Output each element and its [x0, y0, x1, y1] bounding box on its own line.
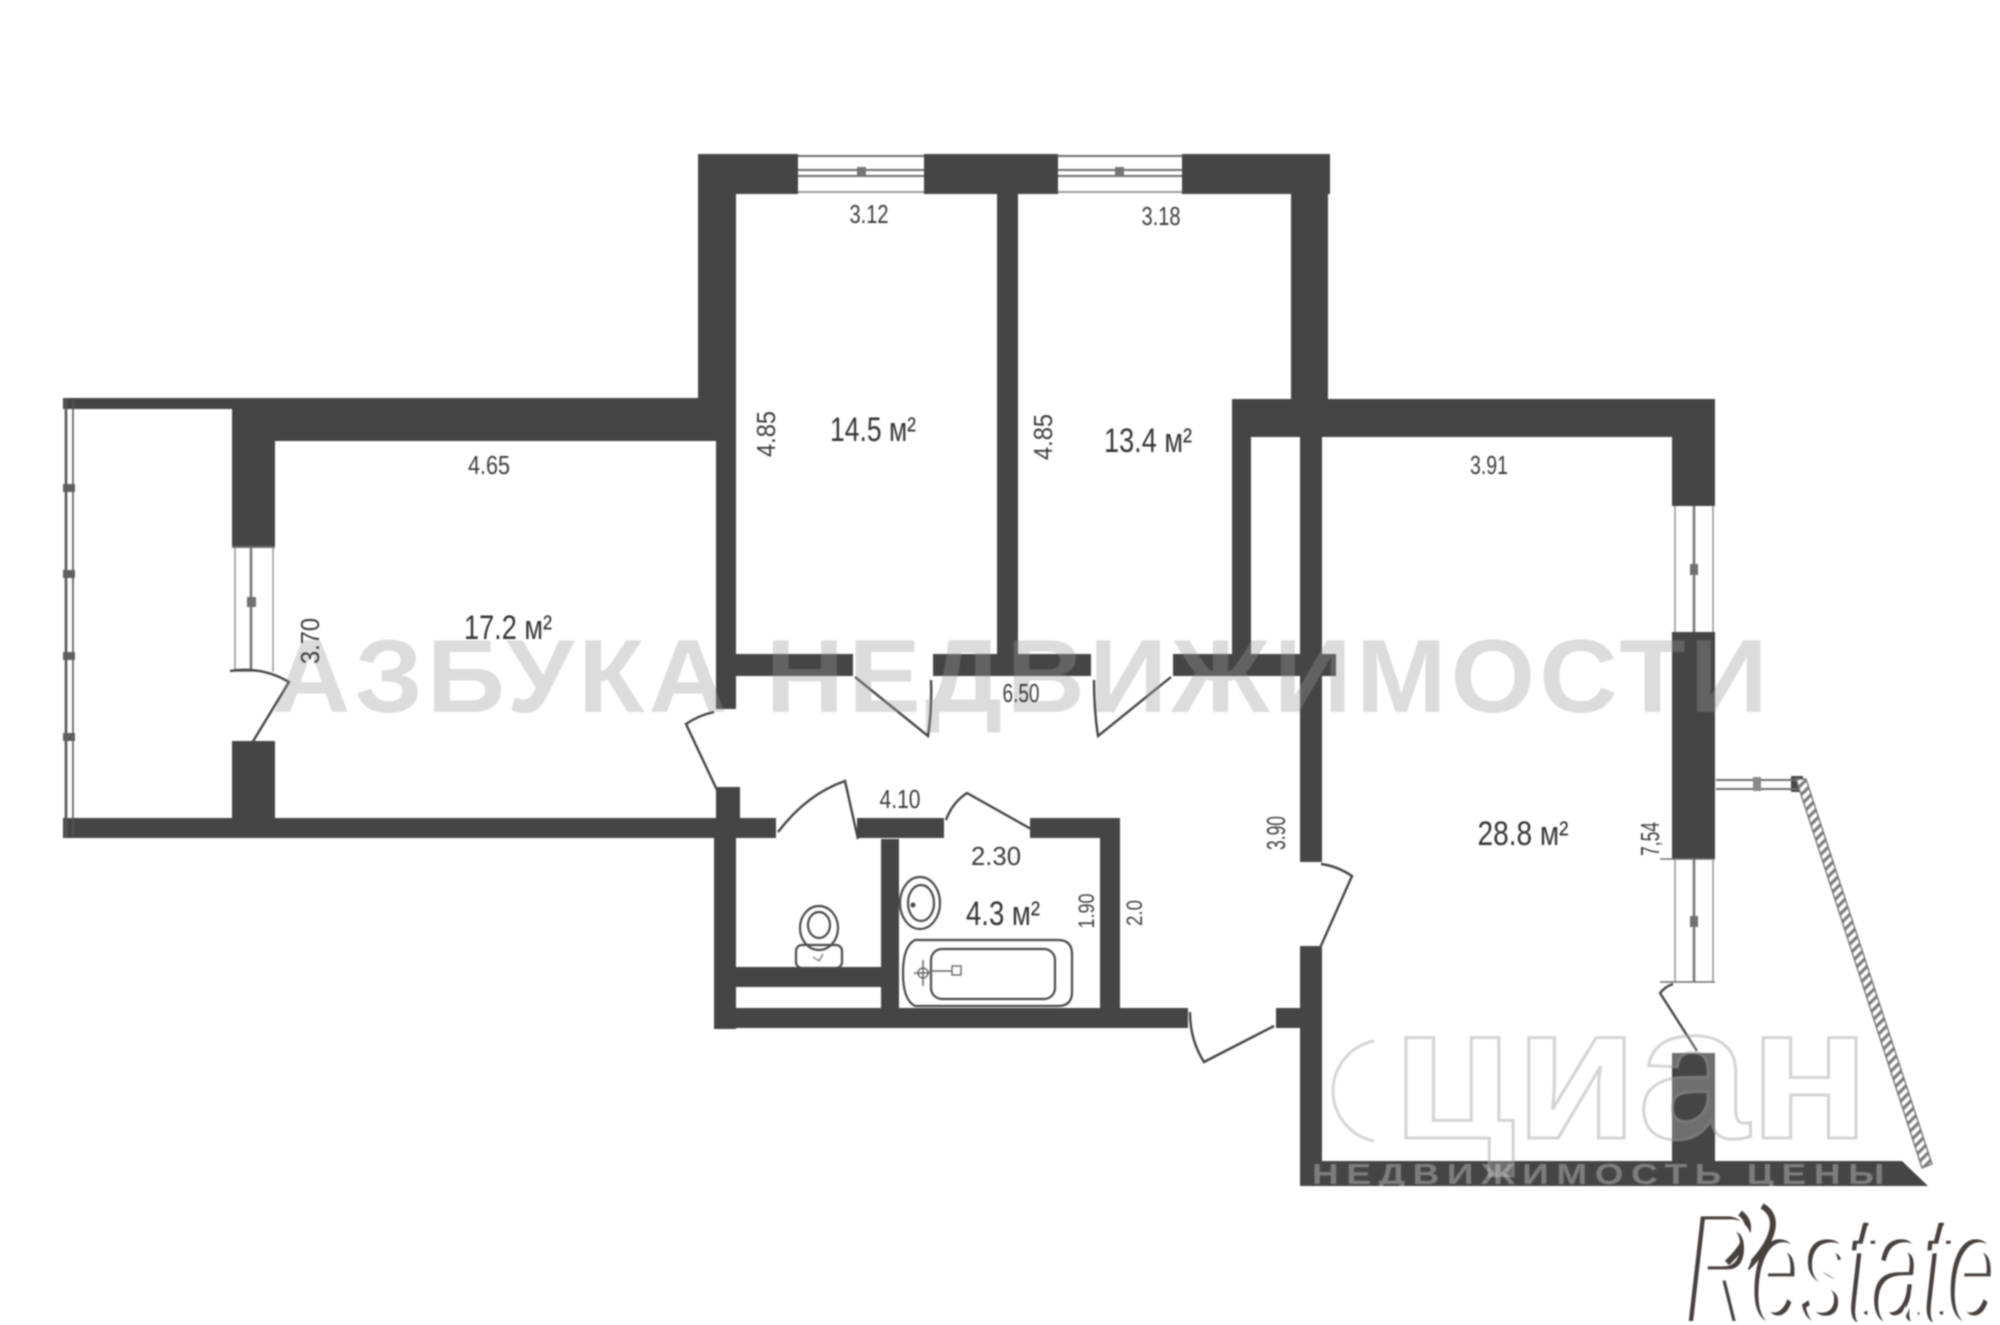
svg-text:4.65: 4.65 [468, 450, 510, 480]
svg-text:28.8 м²: 28.8 м² [1478, 815, 1569, 853]
svg-text:3.18: 3.18 [1142, 201, 1181, 231]
svg-text:4.85: 4.85 [751, 411, 781, 457]
svg-text:2.0: 2.0 [1122, 900, 1147, 926]
svg-text:циан: циан [1392, 967, 1870, 1179]
svg-text:Restate: Restate [1690, 1187, 2000, 1325]
svg-text:4.10: 4.10 [880, 784, 921, 814]
svg-text:6.50: 6.50 [1003, 678, 1040, 708]
svg-text:1.90: 1.90 [1074, 894, 1099, 929]
svg-text:4.85: 4.85 [1028, 414, 1058, 460]
svg-text:3.70: 3.70 [295, 618, 325, 664]
svg-text:14.5 м²: 14.5 м² [830, 411, 916, 449]
svg-text:2.30: 2.30 [971, 841, 1021, 871]
svg-text:7,54: 7,54 [1635, 822, 1665, 856]
svg-text:3.12: 3.12 [850, 199, 889, 229]
svg-text:3.90: 3.90 [1261, 816, 1291, 850]
svg-text:13.4 м²: 13.4 м² [1104, 422, 1192, 460]
svg-text:3.91: 3.91 [1470, 450, 1508, 480]
svg-text:4.3 м²: 4.3 м² [966, 895, 1040, 933]
svg-text:17.2 м²: 17.2 м² [464, 609, 552, 647]
